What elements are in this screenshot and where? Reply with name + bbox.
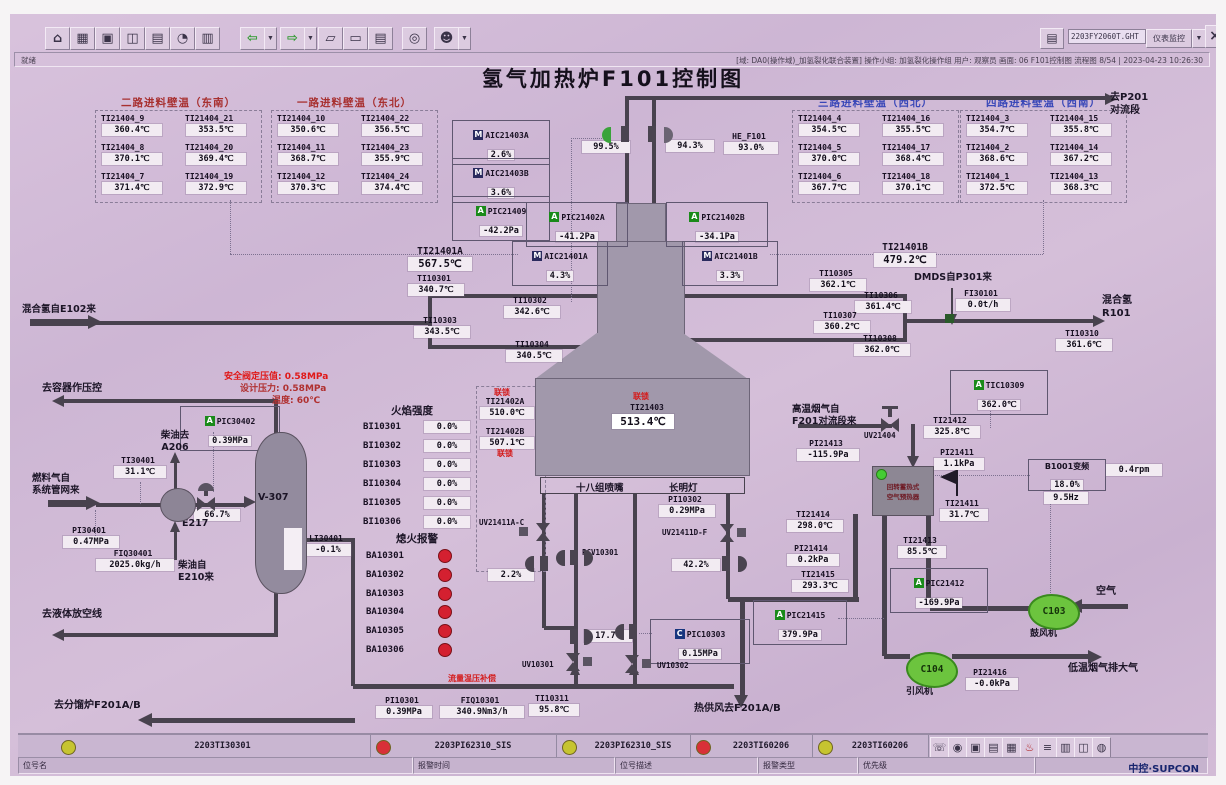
back-icon: ⇦ [247,31,258,46]
home-button[interactable]: ⌂ [45,27,70,50]
valve-stem [882,406,898,409]
pilot-label: 长明灯 [669,480,698,494]
wall-temp-value[interactable]: 355.5℃ [883,124,943,136]
wall-temp-value[interactable]: 354.5℃ [799,124,859,136]
document-button[interactable]: ▥ [1056,737,1075,758]
pipe [627,96,1109,100]
ti10304-value[interactable]: 340.5℃ [506,350,562,362]
flame-intensity-tag: BI10305 [363,498,401,508]
book-icon: ▤ [374,31,386,46]
ti10304-tag: TI10304 [504,340,560,349]
burner-header: 十八组喷嘴长明灯 [540,477,745,494]
m-mode-badge: M [532,251,542,261]
a-mode-badge: A [974,380,984,390]
photo-margin-right [1216,0,1226,785]
print-icon: ▤ [988,741,998,754]
safety-note: 温度: 60℃ [272,396,320,407]
flow-arrow [52,629,64,641]
hot_flue-label: 高温烟气自 F201对流段来 [792,404,856,428]
ti21401b-value[interactable]: 479.2℃ [874,253,936,267]
alarm-dot [438,643,452,657]
flame-intensity-value[interactable]: 0.0% [424,459,470,471]
ti10305-tag: TI10305 [808,269,864,278]
valve-actuator [738,556,747,572]
wall-temp-value[interactable]: 368.3℃ [1051,182,1111,194]
control-valve[interactable] [722,556,730,571]
instrument-value: 362.0℃ [978,400,1019,410]
alarm-field-label: 报警时间 [413,757,615,774]
print-button[interactable]: ▤ [984,737,1003,758]
pi10301-tag: PI10301 [374,696,430,705]
pipe [62,633,278,637]
ti30401-tag: TI30401 [112,456,164,465]
to_p201-label: 去P201 对流段 [1110,92,1148,117]
page-title: 氢气加热炉F101控制图 [0,63,1226,93]
ti21414-tag: TI21414 [785,510,841,519]
flameout-alarm-tag: BA10305 [366,626,404,636]
ti21413-tag: TI21413 [896,536,944,545]
wall-temp-value[interactable]: 370.1℃ [883,182,943,194]
alarm-cell[interactable]: 2203PI62310_SIS [556,735,691,759]
ti21411-value[interactable]: 31.7℃ [940,509,988,521]
instrument-tag: AIC21401A [544,252,587,261]
flame-intensity-value[interactable]: 0.0% [424,497,470,509]
ti10302-value[interactable]: 342.6℃ [504,306,560,318]
wall-temp-tag: TI21404_16 [882,114,930,123]
ti30401-value[interactable]: 31.1℃ [114,466,166,478]
wall-temp-value[interactable]: 354.7℃ [967,124,1027,136]
back-button[interactable]: ⇦ [240,27,265,50]
instrument-value: 4.3% [547,271,573,281]
wall-temp-tag: TI21404_5 [798,143,841,152]
phone-icon: ☏ [933,741,947,754]
instrument-value: 0.15MPa [679,649,721,659]
pi21413-tag: PI21413 [795,439,857,448]
alarm-tagname: 2203PI62310_SIS [394,741,552,751]
wall-temp-value[interactable]: 374.4℃ [362,182,422,194]
user-dropdown[interactable]: ▼ [458,27,471,50]
tic10309-instrument[interactable]: ATIC10309362.0℃ [950,370,1048,415]
uv21411df-valve-tag[interactable]: UV21411D-F [662,528,707,537]
signal-line [140,482,141,504]
m-mode-badge: M [702,251,712,261]
photo-margin-left [0,0,10,785]
wall-temp-value[interactable]: 370.0℃ [799,153,859,165]
wall-temp-value[interactable]: 353.5℃ [186,124,246,136]
wall-temp-tag: TI21404_17 [882,143,930,152]
wall-temp-tag: TI21404_21 [185,114,233,123]
v_stack_r-value[interactable]: 94.3% [666,140,714,152]
graphic-file-input[interactable] [1068,29,1146,44]
ti10311-tag: TI10311 [527,694,577,703]
ti21401a-tag: TI21401A [408,246,472,257]
flameout-alarm-tag: BA10306 [366,645,404,655]
flame-intensity-tag: BI10302 [363,441,401,451]
pi21411-value[interactable]: 1.1kPa [934,458,984,470]
pi10302-value[interactable]: 0.29MPa [659,505,715,517]
e217-exchanger[interactable] [160,488,196,522]
li30401-tag: LI30401 [303,534,349,543]
wall-temp-value[interactable]: 368.6℃ [967,153,1027,165]
uv10302-valve[interactable] [624,655,640,673]
wall-temp-value[interactable]: 368.4℃ [883,153,943,165]
wall-temp-tag: TI21404_2 [966,143,1009,152]
pipe [726,494,730,599]
alarm-dot [438,624,452,638]
interlock-label: 联锁 [633,391,649,402]
valve-actuator [642,659,651,668]
flame-intensity-tag: BI10306 [363,517,401,527]
alarm-cell[interactable]: 2203PI62310_SIS [370,735,557,759]
wall-temp-value[interactable]: 370.1℃ [102,153,162,165]
c103-fan[interactable]: C103 [1028,594,1080,630]
valve-actuator [519,527,528,536]
wall-temp-tag: TI21404_19 [185,172,233,181]
wall-temp-group-title: 二路进料壁温（东南） [95,95,262,110]
diesel_to-label: 柴油去 A206 [146,430,204,454]
he_f101-value[interactable]: 93.0% [724,142,778,154]
alarm-dot [438,549,452,563]
instrument-tag: PIC21412 [926,579,965,588]
pi30401-tag: PI30401 [61,526,117,535]
a-mode-badge: A [205,416,215,426]
alarm-field-label: 位号名 [18,757,413,774]
pi21416-tag: PI21416 [964,668,1016,677]
alarm-bell-button[interactable]: ♨ [1020,737,1039,758]
uv10302-valve-tag[interactable]: UV10302 [657,661,689,670]
wall-temp-value[interactable]: 350.6℃ [278,124,338,136]
phone-button[interactable]: ☏ [930,737,949,758]
wall-temp-tag: TI21404_9 [101,114,144,123]
fiq30401-value[interactable]: 2025.0kg/h [96,559,174,571]
pipe [884,654,910,659]
flame-intensity-value[interactable]: 0.0% [424,516,470,528]
forward-dropdown[interactable]: ▼ [304,27,317,50]
pic21415-instrument[interactable]: APIC21415379.9Pa [753,600,847,645]
wall-temp-value[interactable]: 356.5℃ [362,124,422,136]
user-button[interactable]: ☻ [434,27,459,50]
alarm-cell[interactable]: 2203TI30301 [55,735,371,759]
flame-intensity-tag: BI10304 [363,479,401,489]
ti10303-tag: TI10303 [412,316,468,325]
pi21414-value[interactable]: 0.2kPa [787,554,839,566]
wall-temp-value[interactable]: 372.5℃ [967,182,1027,194]
overview-icon: ▦ [76,31,88,46]
signal-line [230,254,518,255]
pipe [882,514,887,656]
pic10303-valve[interactable] [629,624,637,639]
graphics-button[interactable]: ▣ [95,27,120,50]
v_stack_l-value[interactable]: 99.5% [582,141,630,153]
ti10308-value[interactable]: 362.0℃ [854,344,910,356]
forward-button[interactable]: ⇨ [280,27,305,50]
pi21414-tag: PI21414 [785,544,837,553]
alarm-dot [438,568,452,582]
he_f101-tag: HE_F101 [722,132,776,141]
interlock-label: 联锁 [497,448,513,459]
hot_air-label: 热供风去F201A/B [694,703,781,716]
fiq10301-value[interactable]: 340.9Nm3/h [440,706,524,718]
stack-damper-left-icon [602,127,611,143]
valve-stem [888,409,892,417]
b1001-tag: B1001变频 [1029,461,1105,472]
trend-icon: ◫ [126,31,138,46]
instrument-value: 0.39MPa [209,436,251,446]
page-next-button[interactable]: ▭ [343,27,368,50]
uv10301-valve-tag[interactable]: UV10301 [522,660,554,669]
ti21415-tag: TI21415 [790,570,846,579]
report-button[interactable]: ▥ [195,27,220,50]
lock-icon: ◉ [953,741,963,754]
valve-actuator [583,657,592,666]
ti10311-value[interactable]: 95.8℃ [529,704,579,716]
wall-temp-tag: TI21404_18 [882,172,930,181]
wall-temp-value[interactable]: 355.9℃ [362,153,422,165]
ti21412-value[interactable]: 325.8℃ [924,426,980,438]
wall-temp-value[interactable]: 367.7℃ [799,182,859,194]
li30401-value[interactable]: -0.1% [305,544,351,556]
b1001-rpm[interactable]: 0.4rpm [1106,464,1162,476]
wall-temp-tag: TI21404_6 [798,172,841,181]
burner-header-label: 十八组喷嘴 [576,480,624,494]
b1001-hz[interactable]: 9.5Hz [1044,492,1088,504]
clock-button[interactable]: ◔ [170,27,195,50]
aic21401a-instrument[interactable]: MAIC21401A4.3% [512,241,608,286]
a-mode-badge: A [914,578,924,588]
safety-note: 安全阀定压值: 0.58MPa [224,372,328,383]
a-mode-badge: A [549,212,559,222]
ti10303-value[interactable]: 343.5℃ [414,326,470,338]
aic21401b-instrument[interactable]: MAIC21401B3.3% [682,241,778,286]
dmds-label: DMDS自P301来 [914,272,992,284]
flow-arrow [138,713,152,727]
back-dropdown[interactable]: ▼ [264,27,277,50]
alarm-cell[interactable]: 2203TI60206 [690,735,813,759]
alarm-summary-button[interactable]: ▤ [145,27,170,50]
pipe [853,514,858,599]
search-button[interactable]: ◎ [402,27,427,50]
diesel_from-label: 柴油自 E210来 [178,560,214,584]
ti10307-tag: TI10307 [812,311,868,320]
ti21402b-tag: TI21402B [478,427,532,436]
instrument-monitor-button[interactable]: 仪表监控 [1146,29,1192,48]
search-icon: ◎ [409,31,420,46]
wall-temp-value[interactable]: 372.9℃ [186,182,246,194]
instrument-tag: PIC10303 [687,630,726,639]
pipe [48,500,88,507]
flow-arrow [86,496,100,510]
interlock-label: 联锁 [494,387,510,398]
pi30401-value[interactable]: 0.47MPa [63,536,119,548]
graphics-icon: ▣ [101,31,113,46]
table-button[interactable]: ▦ [1002,737,1021,758]
instrument-value: -42.2Pa [480,226,522,236]
windows-button[interactable]: ◫ [1074,737,1093,758]
ti10310-value[interactable]: 361.6℃ [1056,339,1112,351]
pic10303-instrument[interactable]: CPIC103030.15MPa [650,619,750,664]
signal-line [230,200,231,254]
page-next-icon: ▭ [349,31,361,46]
wall-temp-value[interactable]: 369.4℃ [186,153,246,165]
flame-intensity-tag: BI10303 [363,460,401,470]
wall-temp-value[interactable]: 360.4℃ [102,124,162,136]
furnace-convection-section [597,241,685,337]
instrument-tag: PIC21402A [561,213,604,222]
safety-note: 设计压力: 0.58MPa [240,384,326,395]
b1001-vfd-block[interactable]: B1001变频18.0% [1028,459,1106,491]
page-prev-button[interactable]: ▱ [318,27,343,50]
wall-temp-tag: TI21404_20 [185,143,233,152]
ti21401b-tag: TI21401B [874,242,936,253]
pipe [353,684,734,689]
pipe [30,319,88,326]
cold_flue-label: 低温烟气排大气 [1068,663,1138,676]
valve-dome [198,483,214,491]
pipe [95,321,430,325]
alarm-field-label: 报警类型 [758,757,858,774]
flow-arrow [170,521,180,532]
audio-icon: ◍ [1097,741,1107,754]
instrument-tag: AIC21401B [714,252,757,261]
overview-button[interactable]: ▦ [70,27,95,50]
alarm-field-labels: 位号名报警时间位号描述报警类型优先级中控·SUPCON [18,757,1208,774]
alarm-dot [438,605,452,619]
ti21402a-value[interactable]: 510.0℃ [480,407,534,419]
flame-intensity-value[interactable]: 0.0% [424,478,470,490]
wall-temp-tag: TI21404_22 [361,114,409,123]
valve-actuator [615,624,624,640]
wall-temp-value[interactable]: 371.4℃ [102,182,162,194]
ti21403-value[interactable]: 513.4℃ [612,414,674,429]
instrument-tag: TIC10309 [986,381,1025,390]
ti21403-tag: TI21403 [620,403,674,412]
wall-temp-value[interactable]: 355.8℃ [1051,124,1111,136]
ti21402a-tag: TI21402A [478,397,532,406]
pi21411-tag: PI21411 [932,448,982,457]
uv10301-valve[interactable] [565,653,581,671]
flame-intensity-value[interactable]: 0.0% [424,440,470,452]
ti21413-value[interactable]: 85.5℃ [898,546,946,558]
table-icon: ▦ [1006,741,1016,754]
lock-button[interactable]: ◉ [948,737,967,758]
ti21411-tag: TI21411 [938,499,986,508]
instrument-tag: PIC30402 [217,417,256,426]
ti10302-tag: TI10302 [502,296,558,305]
ti10305-value[interactable]: 362.1℃ [810,279,866,291]
alarm-priority-dot [61,740,76,755]
monitor-dropdown[interactable]: ▼ [1192,29,1206,48]
v307-name: V-307 [258,492,288,504]
control-valve[interactable] [570,629,578,644]
instrument-tag: AIC21403A [485,131,528,140]
ti10310-tag: TI10310 [1054,329,1110,338]
list-button[interactable]: ≡ [1038,737,1057,758]
wall-temp-tag: TI21404_3 [966,114,1009,123]
status-dot [876,469,887,480]
ti21401a-value[interactable]: 567.5℃ [408,257,472,271]
ti10307-value[interactable]: 360.2℃ [814,321,870,333]
brand-logo: 中控·SUPCON [1035,757,1208,774]
flow-arrow [88,315,102,329]
v22-value[interactable]: 2.2% [488,569,534,581]
wall-temp-value[interactable]: 370.3℃ [278,182,338,194]
ti10301-value[interactable]: 340.7℃ [408,284,464,296]
wall-temp-tag: TI21404_7 [101,172,144,181]
clock-icon: ◔ [177,31,188,46]
pi21416-value[interactable]: -0.0kPa [966,678,1018,690]
c-mode-badge: C [675,629,685,639]
wall-temp-value[interactable]: 368.7℃ [278,153,338,165]
wall-temp-tag: TI21404_12 [277,172,325,181]
uv21411ac-valve[interactable] [535,523,551,541]
user-icon: ☻ [440,31,454,46]
instrument-tag: PIC21415 [787,611,826,620]
control-valve[interactable] [540,556,548,571]
v422-value[interactable]: 42.2% [672,559,720,571]
valve-stem [204,491,208,496]
wall-temp-tag: TI21404_11 [277,143,325,152]
uv21404-valve[interactable] [881,417,899,433]
to_drain-label: 去液体放空线 [42,609,102,622]
pipe [274,590,278,635]
trend-button[interactable]: ◫ [120,27,145,50]
screen-button[interactable]: ▣ [966,737,985,758]
to_f201-label: 去分馏炉F201A/B [54,700,141,713]
alarm-priority-dot [376,740,391,755]
instrument-value: 379.9Pa [779,630,821,640]
c104-fan[interactable]: C104 [906,652,958,688]
home-icon: ⌂ [53,31,62,46]
valve-actuator [556,550,565,566]
alarm-field-label: 优先级 [858,757,1035,774]
flame-intensity-value[interactable]: 0.0% [424,421,470,433]
pic21412-instrument[interactable]: APIC21412-169.9Pa [890,568,988,613]
a-mode-badge: A [775,610,785,620]
uv21411ac-valve-tag[interactable]: UV21411A-C [479,518,524,527]
pcv10301-valve[interactable] [570,550,578,565]
printer-button[interactable]: ▤ [1040,28,1064,49]
fuel-control-valve[interactable] [197,496,215,512]
alarm-summary-icon: ▤ [151,31,163,46]
wall-temp-group-title: 一路进料壁温（东北） [271,95,438,110]
uv21411df-valve[interactable] [719,524,735,542]
pi10301-value[interactable]: 0.39MPa [376,706,432,718]
flow-arrow [52,395,64,407]
m-mode-badge: M [473,130,483,140]
wall-temp-value[interactable]: 367.2℃ [1051,153,1111,165]
fi30101-value[interactable]: 0.0t/h [956,299,1010,311]
wall-temp-tag: TI21404_10 [277,114,325,123]
book-button[interactable]: ▤ [368,27,393,50]
ti21414-value[interactable]: 298.0℃ [787,520,843,532]
air-label: 空气 [1096,586,1116,599]
photo-margin-top [0,0,1226,14]
list-icon: ≡ [1043,741,1052,754]
ti21415-value[interactable]: 293.3℃ [792,580,848,592]
signal-line [1043,200,1044,254]
alarm-cell[interactable]: 2203TI60206 [812,735,929,759]
damper-blade [621,126,629,142]
flameout-alarm-tag: BA10303 [366,589,404,599]
pi21413-value[interactable]: -115.9Pa [797,449,859,461]
wall-temp-tag: TI21404_24 [361,172,409,181]
damper-blade [648,126,656,142]
fuel_in-label: 燃料气自 系统管网来 [32,473,80,497]
pipe [905,319,1097,323]
c104_sub-label: 引风机 [906,687,933,698]
fi30101-tag: FI30101 [954,289,1008,298]
audio-button[interactable]: ◍ [1092,737,1111,758]
